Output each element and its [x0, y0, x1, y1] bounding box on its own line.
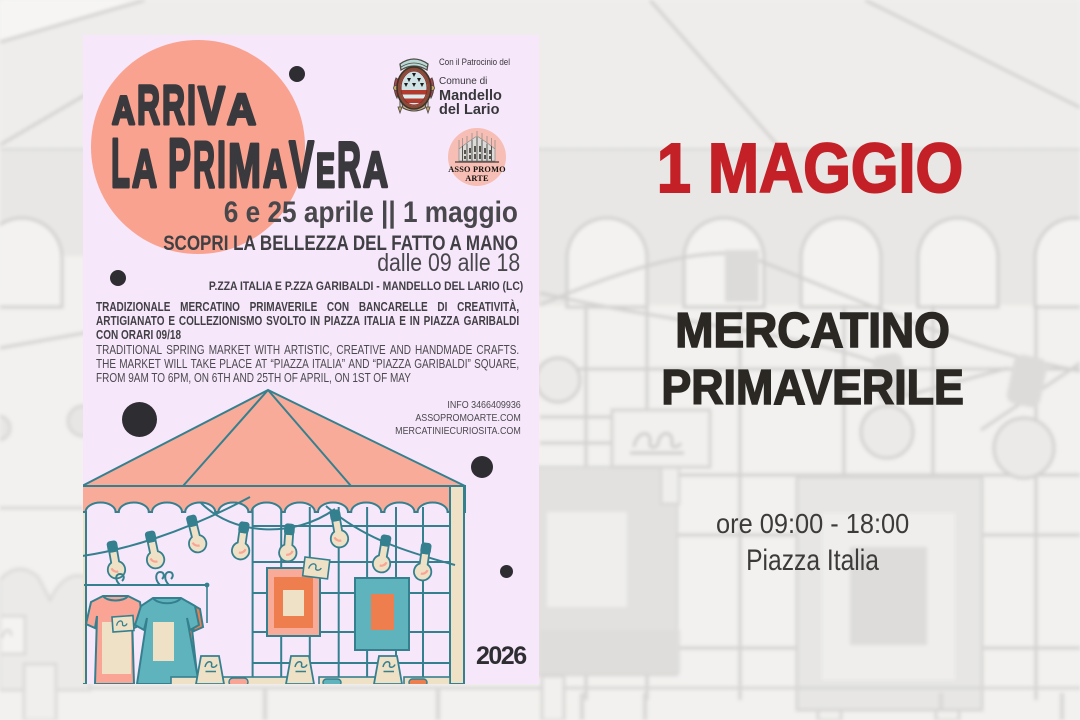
- svg-text:E: E: [316, 145, 335, 198]
- svg-text:L: L: [111, 124, 130, 202]
- svg-text:I: I: [217, 127, 226, 201]
- svg-text:R: R: [337, 129, 361, 201]
- svg-text:ASSO PROMO: ASSO PROMO: [448, 165, 506, 174]
- svg-text:A: A: [132, 139, 157, 199]
- svg-text:A: A: [263, 139, 287, 199]
- svg-text:A: A: [227, 85, 256, 134]
- svg-text:R: R: [137, 73, 160, 136]
- svg-text:V: V: [289, 127, 314, 201]
- svg-text:A: A: [363, 142, 388, 198]
- svg-text:ARTE: ARTE: [465, 174, 489, 183]
- svg-text:P: P: [168, 124, 191, 202]
- svg-text:M: M: [228, 132, 261, 201]
- svg-text:R: R: [193, 127, 215, 201]
